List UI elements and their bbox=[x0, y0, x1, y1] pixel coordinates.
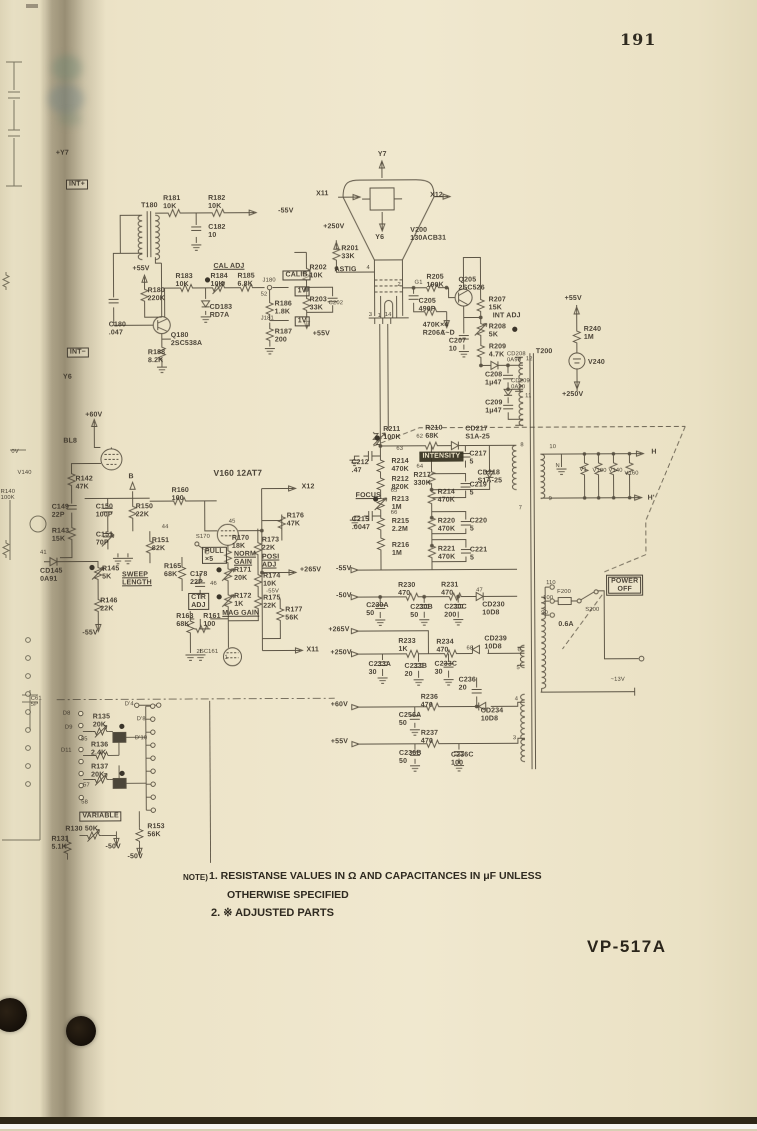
schematic-labels: 0VV140R140 100KC61 5P+Y7INT+INT−Y6+60VBL… bbox=[0, 0, 757, 1131]
label-c215: C215 .0047 bbox=[352, 516, 370, 531]
label--55v: -55V bbox=[336, 565, 351, 573]
label-110: 110 bbox=[546, 580, 556, 586]
label-h': H' bbox=[648, 495, 655, 503]
label-66: 66 bbox=[391, 510, 398, 516]
label-+265v: +265V bbox=[328, 626, 349, 634]
label-3: 3 bbox=[513, 735, 516, 741]
label-46: 46 bbox=[210, 581, 217, 587]
label-cd234: CD234 10D8 bbox=[481, 707, 504, 722]
label-c236: C236 20 bbox=[459, 676, 476, 691]
label-100: 100 bbox=[543, 595, 553, 601]
label-cd183: CD183 RD7A bbox=[210, 304, 233, 319]
label-x12: X12 bbox=[302, 483, 315, 491]
label-int: INT− bbox=[67, 348, 89, 358]
label-+265v: +265V bbox=[300, 566, 321, 574]
label-6: 6 bbox=[517, 647, 520, 653]
label-astig: ASTIG bbox=[334, 266, 356, 274]
label-62: 62 bbox=[416, 434, 423, 440]
label-r184: R184 10K bbox=[210, 273, 227, 288]
label-r131: R131 5.1K bbox=[51, 836, 68, 851]
label-s170: S170 bbox=[196, 534, 210, 540]
label-pull: PULL ×5 bbox=[202, 547, 227, 564]
label-45: 45 bbox=[229, 519, 236, 525]
label-r231: R231 470 bbox=[441, 582, 458, 597]
label-d'10: D'10 bbox=[135, 735, 147, 741]
label-r217: R217 330K bbox=[414, 472, 431, 487]
label-r209: R209 4.7K bbox=[489, 343, 506, 358]
label-focus: FOCUS bbox=[356, 492, 381, 500]
label-r135: R135 20K bbox=[93, 713, 110, 728]
label-+55v: +55V bbox=[313, 330, 330, 338]
label-r236: R236 470 bbox=[421, 694, 438, 709]
label-r171: R171 20K bbox=[234, 567, 251, 582]
label-h: H bbox=[651, 449, 656, 457]
label-mag: MAG GAIN bbox=[222, 610, 259, 618]
label-norm: NORM GAIN bbox=[234, 551, 256, 566]
label-+55v: +55V bbox=[331, 738, 348, 746]
label-r205: R205 190K bbox=[426, 274, 443, 289]
label-11: 11 bbox=[525, 393, 531, 399]
label-c61: C61 5P bbox=[31, 696, 42, 709]
label-c207: C207 10 bbox=[449, 338, 466, 353]
label-c202: C202 bbox=[329, 300, 344, 306]
label-10: 10 bbox=[549, 444, 556, 450]
label-r173: R173 22K bbox=[262, 537, 279, 552]
label-14: 14 bbox=[385, 312, 392, 318]
label-posi: POSI ADJ bbox=[262, 554, 279, 569]
label-x11: X11 bbox=[316, 190, 329, 198]
label-~13v: ~13V bbox=[611, 677, 625, 683]
label-g1: G1 bbox=[415, 280, 423, 286]
label-12: 12 bbox=[526, 356, 533, 362]
label-7: 7 bbox=[519, 505, 522, 511]
label-r181: R181 10K bbox=[163, 195, 180, 210]
label-c208: C208 1μ47 bbox=[485, 371, 502, 386]
label-r160: R160 100 bbox=[172, 487, 189, 502]
label-c217: C217 5 bbox=[469, 450, 486, 465]
label-c230c: C230C 200 bbox=[444, 604, 467, 619]
label-t200: T200 bbox=[536, 348, 553, 356]
label-r214: R214 470K bbox=[391, 458, 408, 473]
label-intensity: INTENSITY bbox=[419, 452, 463, 462]
label-c182: C182 10 bbox=[208, 224, 225, 239]
scanned-page: 191 bbox=[0, 0, 757, 1129]
label-r240: R240 1M bbox=[584, 326, 601, 341]
label-9: 9 bbox=[549, 496, 552, 502]
schematic-diagram: 0VV140R140 100KC61 5P+Y7INT+INT−Y6+60VBL… bbox=[0, 0, 757, 1131]
label-x11: X11 bbox=[306, 646, 319, 654]
label-sweep: SWEEP LENGTH bbox=[122, 571, 152, 586]
label-c209: C209 1μ47 bbox=[485, 399, 502, 414]
scan-background-strip bbox=[0, 1124, 757, 1129]
label-int+: INT+ bbox=[66, 180, 88, 190]
label-+250v: +250V bbox=[562, 391, 583, 399]
label-c149: C149 22P bbox=[52, 504, 69, 519]
label-+60v: +60V bbox=[85, 411, 102, 419]
label-r202: R202 10K bbox=[309, 264, 326, 279]
label-b: B bbox=[129, 473, 134, 481]
label--50v: -50V bbox=[128, 853, 143, 861]
label-cd239: CD239 10D8 bbox=[484, 635, 507, 650]
label-v1: V1 bbox=[579, 467, 586, 473]
label-64: 64 bbox=[416, 464, 423, 470]
label-cd208: CD208 0A90 bbox=[507, 351, 526, 364]
label-c236b: C236B 50 bbox=[399, 750, 422, 765]
label-v100: V100 bbox=[592, 468, 606, 474]
label-d8: D8 bbox=[63, 711, 71, 717]
label-r136: R136 2.4K bbox=[91, 741, 108, 756]
label-c219: C219 5 bbox=[470, 481, 487, 496]
label-41: 41 bbox=[40, 550, 47, 556]
label-r210: R210 68K bbox=[425, 425, 442, 440]
label-d11: D11 bbox=[61, 748, 72, 754]
label-v160: V160 bbox=[625, 471, 639, 477]
label-r146: R146 22K bbox=[100, 597, 117, 612]
label-1: 1 bbox=[224, 655, 227, 661]
label-47: 47 bbox=[476, 587, 483, 593]
label-c236c: C236C 100 bbox=[451, 752, 474, 767]
label-v200: V200 130ACB31 bbox=[410, 227, 446, 242]
label-bl8: BL8 bbox=[63, 438, 77, 446]
label-c230a: C230A 50 bbox=[366, 602, 389, 617]
label-r182: R182 10K bbox=[208, 195, 225, 210]
label-q180: Q180 2SC538A bbox=[171, 332, 202, 347]
label-r137: R137 20K bbox=[91, 763, 108, 778]
label--50v: -50V bbox=[336, 592, 351, 600]
label-+250v: +250V bbox=[330, 649, 351, 657]
label-+55v: +55V bbox=[565, 295, 582, 303]
label-r176: R176 47K bbox=[287, 512, 304, 527]
label-r183: R183 10K bbox=[175, 273, 192, 288]
label-r177: R177 56K bbox=[285, 606, 302, 621]
label-r237: R237 470 bbox=[421, 730, 438, 745]
label-c233a: C233A 30 bbox=[369, 661, 392, 676]
label-d'4: D'4 bbox=[125, 701, 134, 707]
label-s200: S200 bbox=[585, 607, 599, 613]
label-1v: 1V bbox=[295, 316, 310, 326]
label-r215: R215 2.2M bbox=[392, 518, 409, 533]
label-t180: T180 bbox=[141, 202, 158, 210]
label-5: 5 bbox=[517, 665, 520, 671]
label-c212: C212 .47 bbox=[351, 459, 368, 474]
model-label: VP-517A bbox=[587, 937, 666, 957]
label-q205: Q205 2SC526 bbox=[458, 276, 484, 291]
label-cd145: CD145 0A91 bbox=[40, 568, 63, 583]
label-v240: V240 bbox=[588, 359, 605, 367]
label-r221: R221 470K bbox=[438, 546, 455, 561]
label-r180: R180 220K bbox=[148, 287, 165, 302]
label-+250v: +250V bbox=[323, 223, 344, 231]
label-+60v: +60V bbox=[331, 701, 348, 709]
label-f200: F200 bbox=[557, 589, 571, 595]
label-c220: C220 5 bbox=[470, 517, 487, 532]
label-r213: R213 1M bbox=[392, 496, 409, 511]
label-r230: R230 470 bbox=[398, 582, 415, 597]
label-power: POWER OFF bbox=[608, 577, 641, 594]
label-r201: R201 33K bbox=[341, 245, 358, 260]
label-y6: Y6 bbox=[375, 234, 384, 242]
label-r214: R214 470K bbox=[438, 489, 455, 504]
label-3: 3 bbox=[369, 312, 372, 318]
label-d9: D9 bbox=[65, 725, 73, 731]
label-58: 58 bbox=[81, 800, 88, 806]
label-44: 44 bbox=[162, 524, 169, 530]
label-r175: R175 22K bbox=[263, 595, 280, 610]
label-r216: R216 1M bbox=[392, 542, 409, 557]
label-+55v: +55V bbox=[132, 265, 149, 273]
label-j180: J180 bbox=[262, 278, 275, 284]
label-c205: C205 490P bbox=[419, 298, 436, 313]
label--55v: -55V bbox=[278, 207, 293, 215]
label-r140: R140 100K bbox=[1, 489, 16, 502]
label-4: 4 bbox=[515, 696, 518, 702]
label-r186: R186 1.8K bbox=[275, 300, 292, 315]
label-4: 4 bbox=[366, 265, 369, 271]
hole-punch bbox=[66, 1016, 96, 1046]
label-1: 1 bbox=[378, 313, 381, 319]
label-r172: R172 1K bbox=[234, 593, 251, 608]
label-57: 57 bbox=[83, 783, 90, 789]
label-variable: VARIABLE bbox=[79, 811, 122, 821]
label-1v: 1V bbox=[295, 286, 310, 296]
label-r187: R187 200 bbox=[275, 328, 292, 343]
label-v160: V160 12AT7 bbox=[213, 469, 262, 478]
label-2sc161: 2SC161 bbox=[196, 649, 218, 655]
label-d'8: D'8 bbox=[137, 716, 146, 722]
label-r208: R208 5K bbox=[489, 323, 506, 338]
label-c151: C151 70P bbox=[96, 531, 113, 546]
label-cd230: CD230 10D8 bbox=[482, 601, 505, 616]
label-r203: R203 33K bbox=[310, 296, 327, 311]
page-bottom-edge bbox=[0, 1117, 757, 1124]
label-r188: R188 8.2K bbox=[148, 349, 165, 364]
note-prefix: NOTE) bbox=[183, 873, 208, 882]
label-int: INT ADJ bbox=[493, 312, 521, 320]
label-r165: R165 68K bbox=[164, 563, 181, 578]
label-v140: V140 bbox=[17, 470, 31, 476]
label-r161: R161 100 bbox=[203, 613, 220, 628]
label-cd209: CD209 0A90 bbox=[511, 378, 530, 391]
label-470k×4: 470K×4 R206A~D bbox=[423, 322, 455, 337]
label-cal: CAL ADJ bbox=[213, 263, 244, 271]
note-item1-continued: OTHERWISE SPECIFIED bbox=[227, 889, 349, 901]
label-c221: C221 5 bbox=[470, 546, 487, 561]
label-r185: R185 6.8K bbox=[237, 273, 254, 288]
label-90: 90 bbox=[541, 610, 548, 616]
label-calib: CALIB bbox=[282, 270, 310, 280]
label-r163: R163 68K bbox=[176, 613, 193, 628]
label-x12: X12 bbox=[430, 192, 443, 200]
label-r211: R211 100K bbox=[383, 426, 400, 441]
note-item2: 2. ※ ADJUSTED PARTS bbox=[211, 906, 334, 919]
label-r142: R142 47K bbox=[76, 475, 93, 490]
label-r145: R145 5K bbox=[102, 565, 119, 580]
label-c233b: C233B 20 bbox=[405, 663, 428, 678]
label-52: 52 bbox=[261, 292, 268, 298]
label-r143: R143 15K bbox=[52, 528, 69, 543]
label-65: 65 bbox=[391, 488, 398, 494]
label-r174: R174 10K bbox=[263, 573, 280, 588]
label-c178: C178 22P bbox=[190, 571, 207, 586]
label-0.6a: 0.6A bbox=[558, 621, 573, 629]
label-cd217: CD217 S1A-25 bbox=[465, 425, 490, 440]
label-+y7: +Y7 bbox=[56, 150, 69, 158]
label-c180: C180 .047 bbox=[109, 321, 126, 336]
label-r151: R151 82K bbox=[152, 537, 169, 552]
label-r234: R234 470 bbox=[436, 639, 453, 654]
label-0v: 0V bbox=[11, 449, 18, 455]
label-r153: R153 56K bbox=[147, 823, 164, 838]
label-n: N bbox=[555, 463, 559, 469]
label-c256a: C256A 50 bbox=[399, 712, 422, 727]
label-c150: C150 100P bbox=[96, 503, 113, 518]
label-r233: R233 1K bbox=[398, 638, 415, 653]
label-c230b: C230B 50 bbox=[410, 604, 433, 619]
label-r150: R150 22K bbox=[136, 503, 153, 518]
label-v140: V140 bbox=[608, 468, 622, 474]
label-68: 68 bbox=[466, 646, 473, 652]
label-r220: R220 470K bbox=[438, 518, 455, 533]
label-r170: R170 18K bbox=[232, 535, 249, 550]
label--50v: -50V bbox=[105, 843, 120, 851]
label-8: 8 bbox=[520, 442, 523, 448]
label-ctr: CTR ADJ bbox=[188, 593, 209, 610]
label--55v: -55V bbox=[82, 629, 97, 637]
label-r207: R207 15K bbox=[489, 296, 506, 311]
label-j181: J181 bbox=[261, 316, 274, 322]
label-63: 63 bbox=[396, 446, 403, 452]
note-item1: 1. RESISTANSE VALUES IN Ω AND CAPACITANC… bbox=[209, 870, 542, 882]
label-2: 2 bbox=[398, 282, 401, 288]
label-y6: Y6 bbox=[63, 374, 72, 382]
label-c233c: C233C 30 bbox=[435, 661, 458, 676]
label-y7: Y7 bbox=[378, 151, 387, 159]
label-r130: R130 50K bbox=[65, 825, 98, 833]
label-55: 55 bbox=[81, 737, 88, 743]
